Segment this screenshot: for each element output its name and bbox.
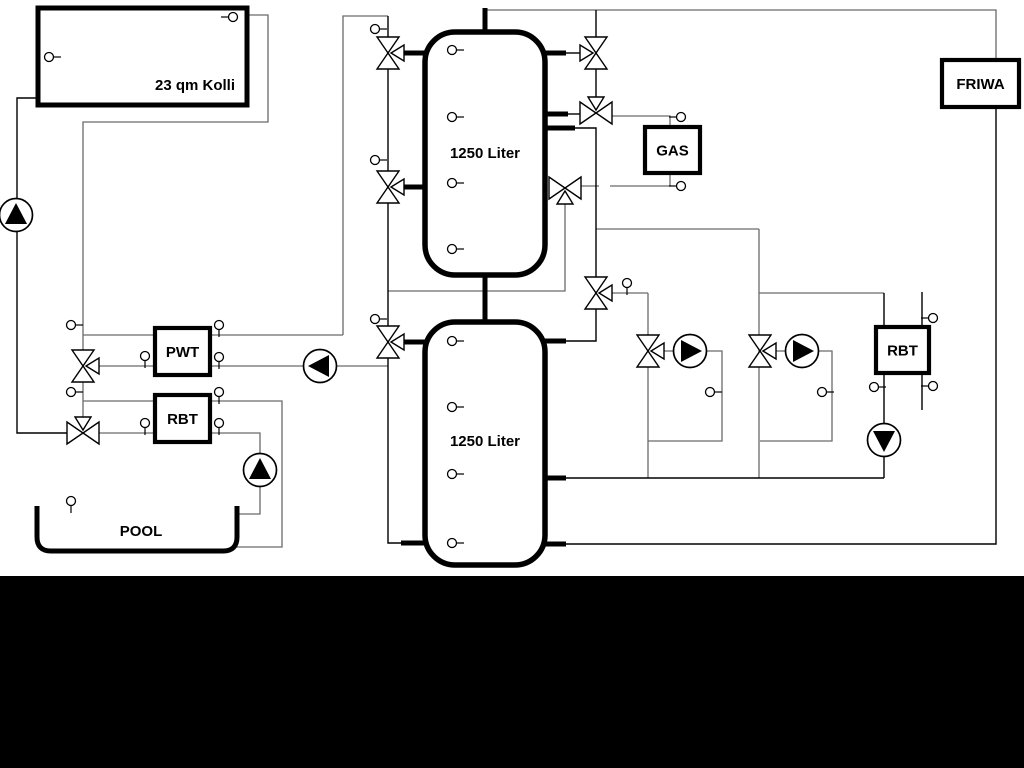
pump-heating-circuit-1	[674, 335, 707, 368]
letterbox-bar	[0, 576, 1024, 768]
three-way-valve-tank1-top-left	[377, 37, 404, 69]
pool-label: POOL	[120, 523, 163, 540]
three-way-valve-solar-rbt	[67, 417, 99, 444]
three-way-valve-tank1-mid-left	[377, 171, 404, 203]
three-way-valve-heating-circuit-1	[637, 335, 664, 367]
temperature-sensor	[67, 321, 84, 330]
pipe-line	[17, 98, 70, 433]
pump-pwt-circuit	[304, 350, 337, 383]
pump-pool-circuit	[244, 454, 277, 487]
buffer-tank-1-label: 1250 Liter	[450, 145, 520, 162]
temperature-sensor	[371, 25, 388, 34]
three-way-valve-gas-flow	[580, 97, 612, 124]
pump-heating-circuit-2	[786, 335, 819, 368]
three-way-valve-heating-circuit-2	[749, 335, 776, 367]
temperature-sensor	[921, 382, 938, 391]
temperature-sensor	[371, 315, 388, 324]
temperature-sensor	[67, 497, 76, 514]
three-way-valve-tank2-right	[585, 277, 612, 309]
temperature-sensor	[371, 156, 388, 165]
pump-solar	[0, 199, 33, 232]
temperature-sensor	[669, 113, 686, 122]
temperature-sensor	[706, 388, 723, 397]
rbt-left-heat-exchanger-label: RBT	[167, 411, 198, 428]
temperature-sensor	[921, 314, 938, 323]
friwa-station-label: FRIWA	[956, 76, 1004, 93]
three-way-valve-tank2-left	[377, 326, 404, 358]
pwt-heat-exchanger-label: PWT	[166, 344, 199, 361]
pipe-line	[388, 16, 402, 543]
three-way-valve-tank1-top-right	[580, 37, 607, 69]
temperature-sensor	[669, 182, 686, 191]
buffer-tank-2-label: 1250 Liter	[450, 433, 520, 450]
schematic-page: 23 qm Kolli1250 Liter1250 LiterPWTRBTGAS…	[0, 0, 1024, 768]
gas-boiler-label: GAS	[656, 143, 689, 160]
three-way-valve-solar-pwt	[72, 350, 99, 382]
pump-rbt-right	[868, 424, 901, 457]
three-way-valve-gas-return	[549, 177, 581, 204]
temperature-sensor	[67, 388, 84, 397]
rbt-right-heat-exchanger-label: RBT	[887, 343, 918, 360]
collector-label: 23 qm Kolli	[155, 77, 235, 94]
